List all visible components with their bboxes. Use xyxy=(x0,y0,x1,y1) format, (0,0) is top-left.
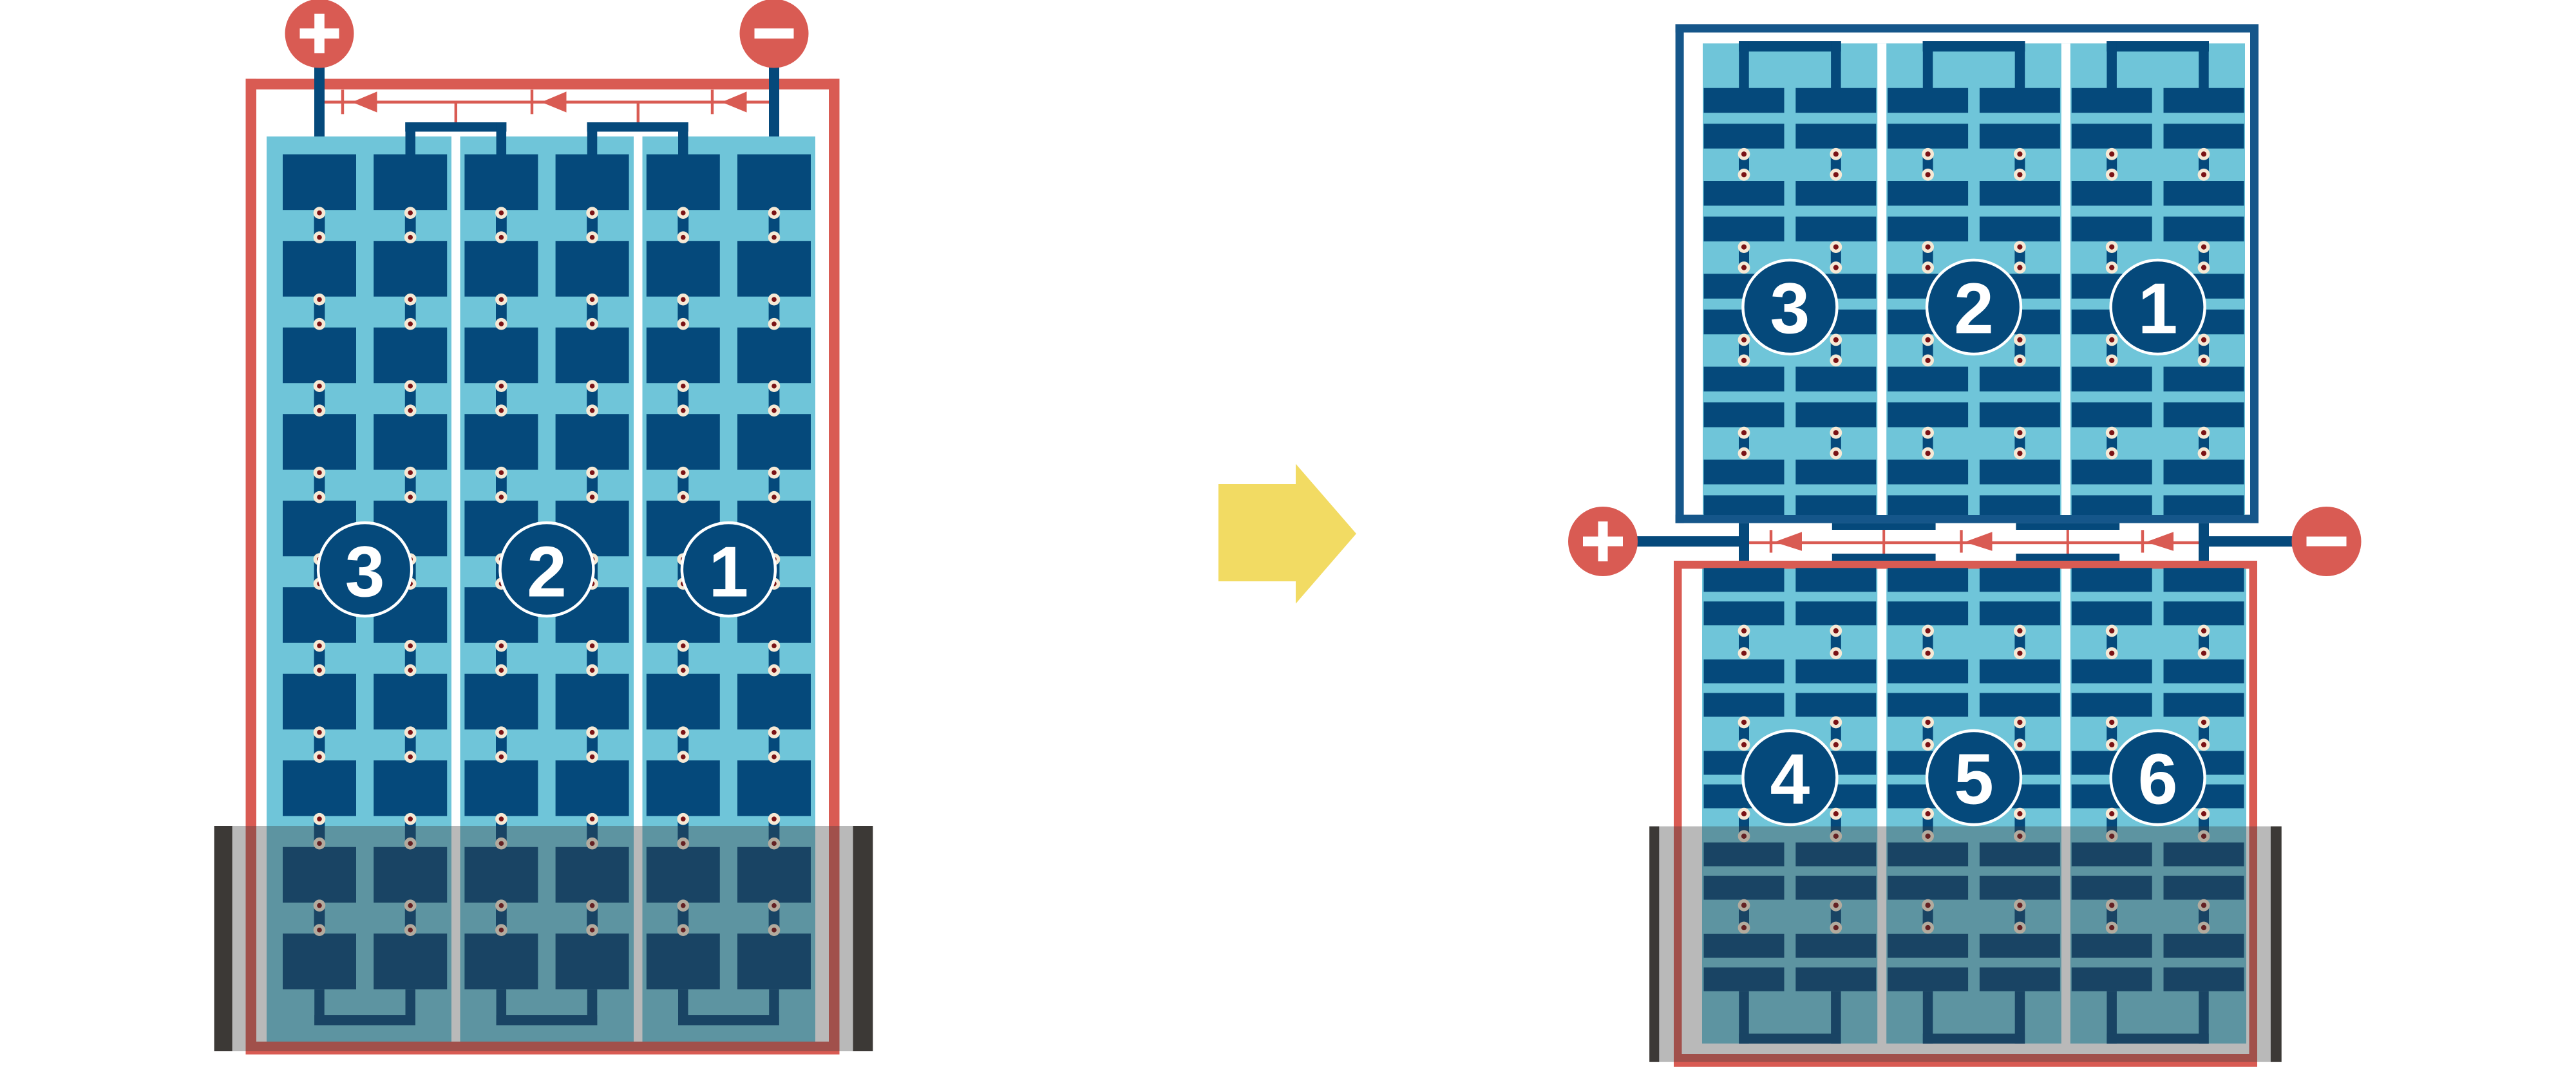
svg-text:3: 3 xyxy=(1770,269,1810,349)
svg-text:2: 2 xyxy=(1954,269,1994,349)
svg-text:3: 3 xyxy=(345,532,385,612)
svg-text:5: 5 xyxy=(1954,740,1994,820)
svg-text:1: 1 xyxy=(709,532,749,612)
svg-text:2: 2 xyxy=(527,532,567,612)
svg-text:4: 4 xyxy=(1770,740,1810,820)
svg-text:1: 1 xyxy=(2138,269,2178,349)
svg-text:6: 6 xyxy=(2138,740,2178,820)
